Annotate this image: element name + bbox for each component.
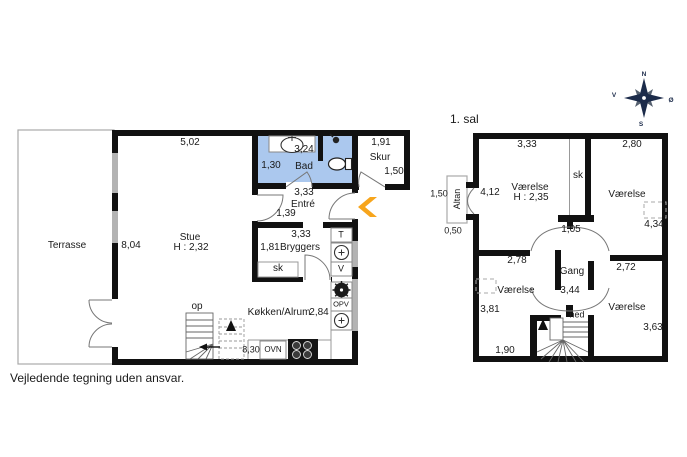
stairs-ground <box>186 313 244 359</box>
stairs-label-ned: ned <box>569 311 584 320</box>
closet-label-ground: sk <box>273 264 283 274</box>
dim-stue-width: 5,02 <box>180 138 199 148</box>
room-label-se: Værelse <box>608 303 645 313</box>
first-floor-walls <box>466 133 668 362</box>
room-label-terrasse: Terrasse <box>48 241 86 251</box>
appliance-label-washer: V <box>338 265 344 274</box>
dim-room-ne-height: 4,34 <box>644 220 663 230</box>
dim-room-se-width: 2,72 <box>616 263 635 273</box>
room-label-ne: Værelse <box>608 190 645 200</box>
dim-room-ne-width: 2,80 <box>622 140 641 150</box>
dim-gang-width: 1,05 <box>561 225 580 235</box>
dim-altan-width: 0,50 <box>444 227 462 236</box>
room-label-kokken: Køkken/Alrum <box>248 308 311 318</box>
floorplan-drawing: N Ø S V <box>0 0 687 457</box>
closet-label-first: sk <box>573 171 583 181</box>
room-label-bryggers: Bryggers <box>280 243 320 253</box>
room-label-sw: Værelse <box>497 286 534 296</box>
toilet-icon <box>329 158 346 170</box>
kitchen-sink-icon <box>333 281 351 299</box>
floor-title-first: 1. sal <box>450 112 479 126</box>
stairs-up-arrow <box>226 320 236 331</box>
dim-bad-width: 3,24 <box>294 145 313 155</box>
dim-room-sw-height: 3,81 <box>480 305 499 315</box>
dim-kokken-width: 2,84 <box>309 308 328 318</box>
dim-bad-depth: 1,30 <box>261 161 280 171</box>
disclaimer-text: Vejledende tegning uden ansvar. <box>10 371 184 385</box>
appliance-label-dryer: T <box>338 231 344 240</box>
shower-icon <box>333 137 339 143</box>
dim-stue-height: 8,04 <box>121 241 140 251</box>
balcony-label: Altan <box>452 189 462 210</box>
dim-gang-length: 3,44 <box>560 286 579 296</box>
compass-e: Ø <box>668 97 673 104</box>
dim-room-nw-height: 4,12 <box>480 188 499 198</box>
dim-room-sw-bottom: 1,90 <box>495 346 514 356</box>
appliance-column <box>331 228 352 330</box>
kitchen-fixtures <box>248 282 331 360</box>
dim-room-se-height: 3,63 <box>643 323 662 333</box>
appliance-label-oven: OVN <box>264 346 281 354</box>
dim-bryggers-depth: 1,81 <box>260 243 279 253</box>
stairs-label-op: op <box>191 302 202 312</box>
dim-skur-width: 1,91 <box>371 138 390 148</box>
dim-skur-depth: 1,50 <box>384 167 403 177</box>
dim-kitchen-bottom: 8,30 <box>242 346 260 355</box>
compass-w: V <box>612 92 617 99</box>
ceiling-height-room-nw: H : 2,35 <box>513 193 548 203</box>
compass-rose: N Ø S V <box>612 71 674 128</box>
balcony-door-opening <box>472 188 480 214</box>
dim-bryggers-width: 3,33 <box>291 230 310 240</box>
compass-s: S <box>639 121 644 128</box>
stairs-first <box>537 318 588 362</box>
toilet-cistern <box>346 159 352 170</box>
ceiling-height-stue: H : 2,32 <box>173 243 208 253</box>
first-floor-plan <box>447 133 668 362</box>
floorplan-page: N Ø S V 5,02 Terrasse 8,04 Stue H : 2,32… <box>0 0 687 457</box>
dim-room-sw-width: 2,78 <box>507 256 526 266</box>
stove-icon <box>288 339 318 360</box>
dim-entre-width: 3,33 <box>294 188 313 198</box>
room-label-bad: Bad <box>295 162 313 172</box>
room-label-gang: Gang <box>560 267 584 277</box>
dim-room-nw-width: 3,33 <box>517 140 536 150</box>
room-label-skur: Skur <box>370 153 391 163</box>
entrance-arrow-icon <box>358 197 377 217</box>
dim-altan-height: 1,50 <box>430 190 448 199</box>
dim-entre-depth: 1,39 <box>276 209 295 219</box>
appliance-label-dishwasher: OPV <box>333 300 349 308</box>
compass-n: N <box>642 71 647 78</box>
